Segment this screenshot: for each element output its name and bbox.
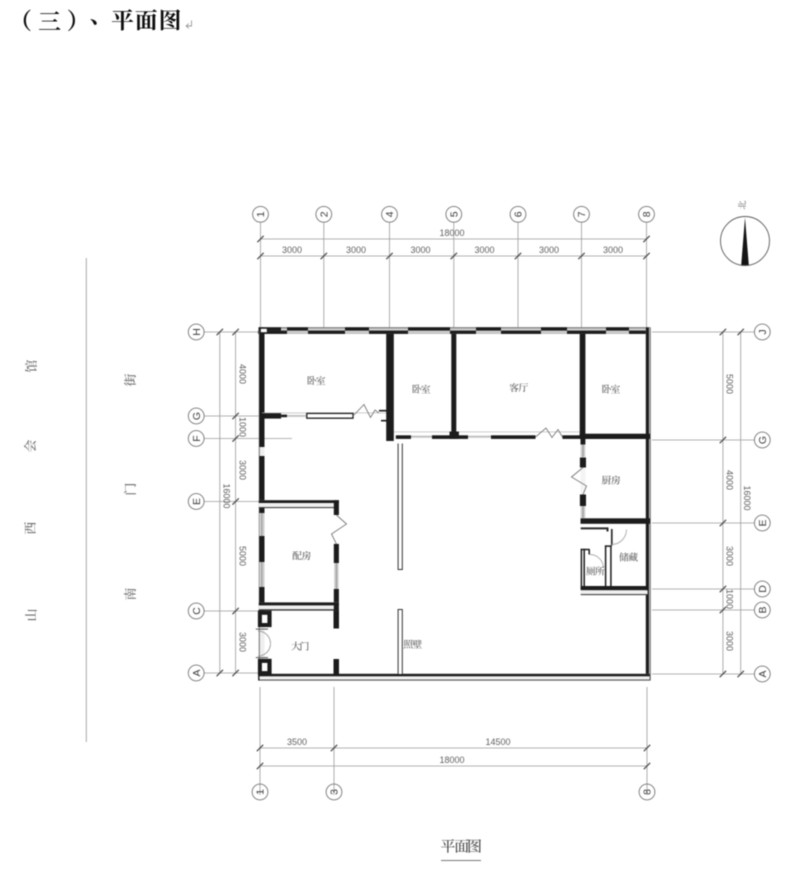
svg-text:3500: 3500: [287, 737, 307, 747]
svg-text:E: E: [757, 519, 769, 526]
svg-text:3000: 3000: [603, 245, 623, 255]
svg-text:7: 7: [576, 211, 588, 217]
svg-text:A: A: [757, 670, 769, 677]
svg-text:5000: 5000: [238, 546, 248, 566]
svg-text:2: 2: [318, 211, 330, 217]
svg-text:G: G: [191, 412, 203, 420]
svg-text:3000: 3000: [238, 632, 248, 652]
svg-text:D: D: [757, 585, 769, 593]
svg-text:3000: 3000: [410, 245, 430, 255]
svg-text:6: 6: [513, 211, 525, 217]
svg-text:4000: 4000: [238, 364, 248, 384]
svg-text:3000: 3000: [725, 546, 735, 566]
svg-text:16000: 16000: [222, 483, 232, 508]
svg-text:A: A: [191, 669, 203, 676]
svg-text:1: 1: [255, 211, 267, 217]
svg-text:8: 8: [642, 789, 654, 795]
svg-text:4: 4: [384, 211, 396, 217]
svg-text:5: 5: [448, 211, 460, 217]
svg-text:B: B: [757, 606, 769, 613]
svg-text:J: J: [757, 329, 769, 334]
svg-text:E: E: [191, 498, 203, 505]
svg-text:3000: 3000: [346, 245, 366, 255]
svg-text:3000: 3000: [238, 460, 248, 480]
svg-text:4000: 4000: [725, 470, 735, 490]
svg-text:5000: 5000: [725, 374, 735, 394]
svg-text:1: 1: [255, 789, 267, 795]
svg-text:H: H: [191, 328, 203, 336]
svg-text:G: G: [757, 436, 769, 444]
svg-text:3000: 3000: [282, 245, 302, 255]
svg-text:C: C: [191, 607, 203, 615]
svg-text:18000: 18000: [439, 755, 464, 765]
svg-text:1000: 1000: [238, 417, 248, 437]
svg-text:3000: 3000: [474, 245, 494, 255]
svg-text:18000: 18000: [439, 228, 464, 238]
svg-text:3000: 3000: [725, 631, 735, 651]
svg-text:3: 3: [329, 789, 341, 795]
svg-text:8: 8: [641, 211, 653, 217]
svg-text:16000: 16000: [742, 485, 752, 510]
svg-text:F: F: [191, 435, 203, 441]
svg-text:1000: 1000: [725, 589, 735, 609]
svg-text:14500: 14500: [485, 737, 510, 747]
svg-text:3000: 3000: [539, 245, 559, 255]
